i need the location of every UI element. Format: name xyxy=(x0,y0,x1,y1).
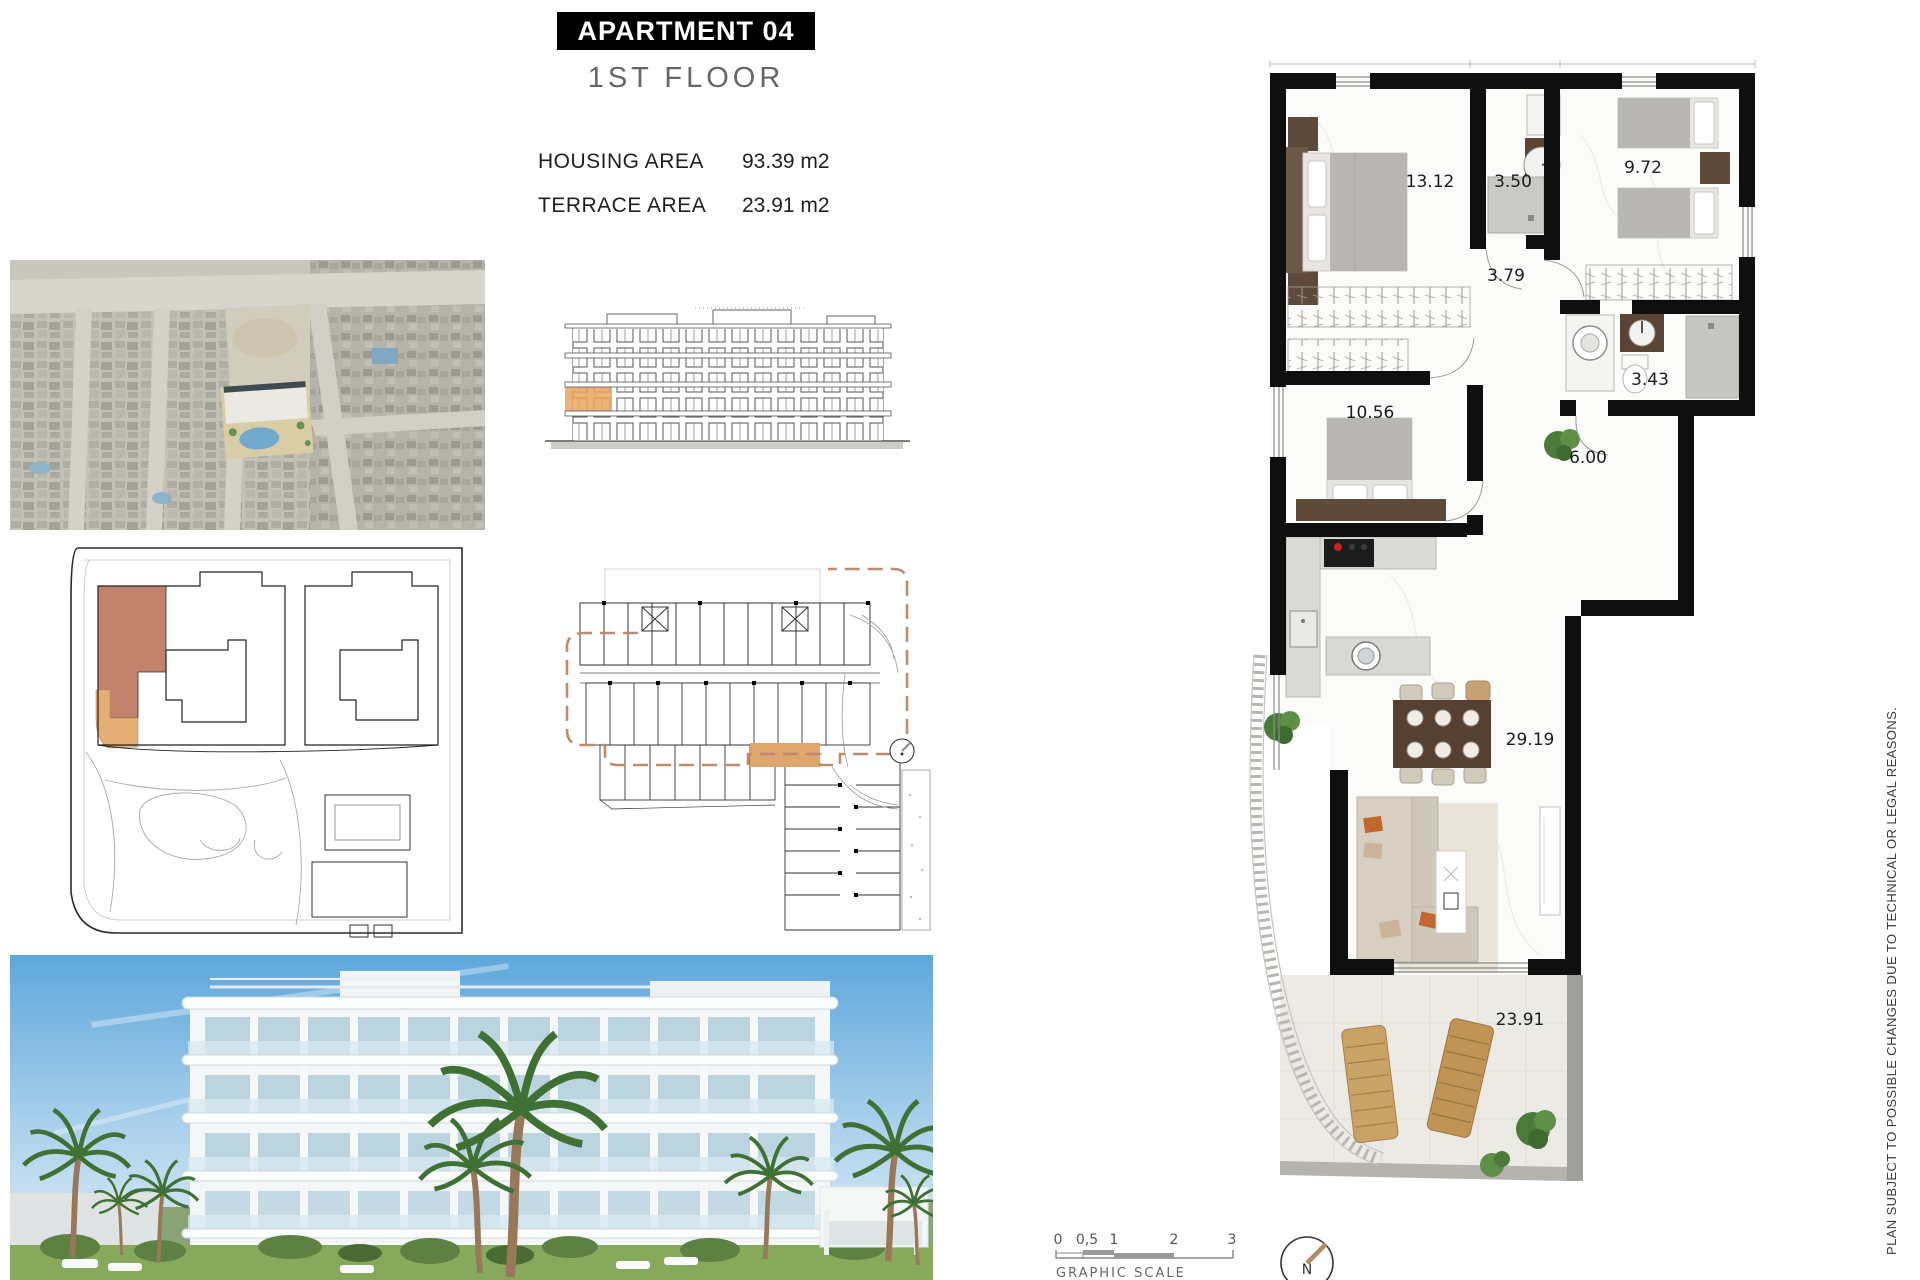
scale-bar-graphic xyxy=(1056,1250,1233,1258)
label-bedroom-2: 9.72 xyxy=(1624,158,1662,178)
tv-sideboard xyxy=(1540,807,1560,915)
elevation-roof xyxy=(607,310,875,325)
aerial-pool-small xyxy=(152,492,172,504)
scale-bar: 0 0,5 1 2 3 GRAPHIC SCALE xyxy=(1045,1228,1245,1280)
dimension-line xyxy=(1270,60,1755,68)
label-master-bedroom: 13.12 xyxy=(1406,172,1455,192)
aerial-pool-small xyxy=(372,348,398,364)
label-terrace: 23.91 xyxy=(1496,1010,1545,1030)
floor-subtitle: 1ST FLOOR xyxy=(557,62,815,95)
driveway-curves xyxy=(832,615,898,809)
wardrobe-bedroom2 xyxy=(1586,265,1732,300)
highlighted-unit-elevation xyxy=(565,386,612,413)
north-arrow-icon: N xyxy=(1279,1233,1337,1280)
terrace-parapet xyxy=(1567,975,1583,1181)
elevation-figure xyxy=(545,295,910,455)
aerial-site-building xyxy=(221,381,314,459)
site-plan-figure xyxy=(50,540,480,945)
label-bathroom-1: 3.50 xyxy=(1494,172,1532,192)
label-living-dining: 29.19 xyxy=(1506,730,1555,750)
disclaimer-note: PLAN SUBJECT TO POSSIBLE CHANGES DUE TO … xyxy=(1884,795,1899,1255)
label-bedroom-3: 10.56 xyxy=(1346,403,1395,423)
page-title: APARTMENT 04 xyxy=(577,16,794,47)
structure-columns xyxy=(602,601,870,897)
area-summary: HOUSING AREA 93.39 m2 TERRACE AREA 23.91… xyxy=(538,150,868,224)
compass-n-label: N xyxy=(1302,1262,1312,1278)
coffee-table xyxy=(1436,851,1466,933)
ramp-strip xyxy=(902,770,930,930)
scale-tick-2: 2 xyxy=(1170,1232,1179,1248)
housing-area-value: 93.39 m2 xyxy=(742,150,830,174)
corridor-lines xyxy=(580,673,880,683)
aerial-sand-patch xyxy=(233,318,297,358)
plan-sheet: { "sheet": { "title": "APARTMENT 04", "s… xyxy=(0,0,1920,1280)
hob xyxy=(1334,543,1342,551)
keyplan-compass xyxy=(890,739,914,763)
cushion xyxy=(1363,816,1383,833)
graphic-scale-label: GRAPHIC SCALE xyxy=(1056,1266,1186,1280)
scale-tick-1: 1 xyxy=(1110,1232,1119,1248)
ramp-dots xyxy=(909,794,923,920)
dining-set xyxy=(1393,681,1491,785)
ground-band xyxy=(551,442,903,449)
scale-tick-3: 3 xyxy=(1228,1232,1237,1248)
aerial-pool-small xyxy=(29,462,51,474)
key-plan-figure xyxy=(550,555,935,955)
aerial-photo xyxy=(10,260,485,530)
label-hallway: 3.79 xyxy=(1487,266,1525,286)
roof-outline xyxy=(605,569,820,603)
kitchen-sink xyxy=(1290,611,1317,647)
scale-tick-05: 0,5 xyxy=(1076,1232,1098,1248)
title-banner: APARTMENT 04 xyxy=(557,12,815,50)
terrace-area-label: TERRACE AREA xyxy=(538,194,706,218)
scale-tick-0: 0 xyxy=(1054,1232,1063,1248)
label-bathroom-2: 3.43 xyxy=(1631,370,1669,390)
scale-ticks: 0 0,5 1 2 3 xyxy=(1054,1232,1237,1248)
apartment-dashed-outline xyxy=(567,569,907,765)
mid-units xyxy=(586,683,870,745)
apartment-floor-plan: 13.12 3.50 9.72 3.79 3.43 10.56 6.00 29.… xyxy=(1230,55,1760,1195)
label-corridor: 6.00 xyxy=(1569,448,1607,468)
terrace-area-value: 23.91 m2 xyxy=(742,194,830,218)
building-render-photo xyxy=(10,955,933,1280)
housing-area-label: HOUSING AREA xyxy=(538,150,704,174)
